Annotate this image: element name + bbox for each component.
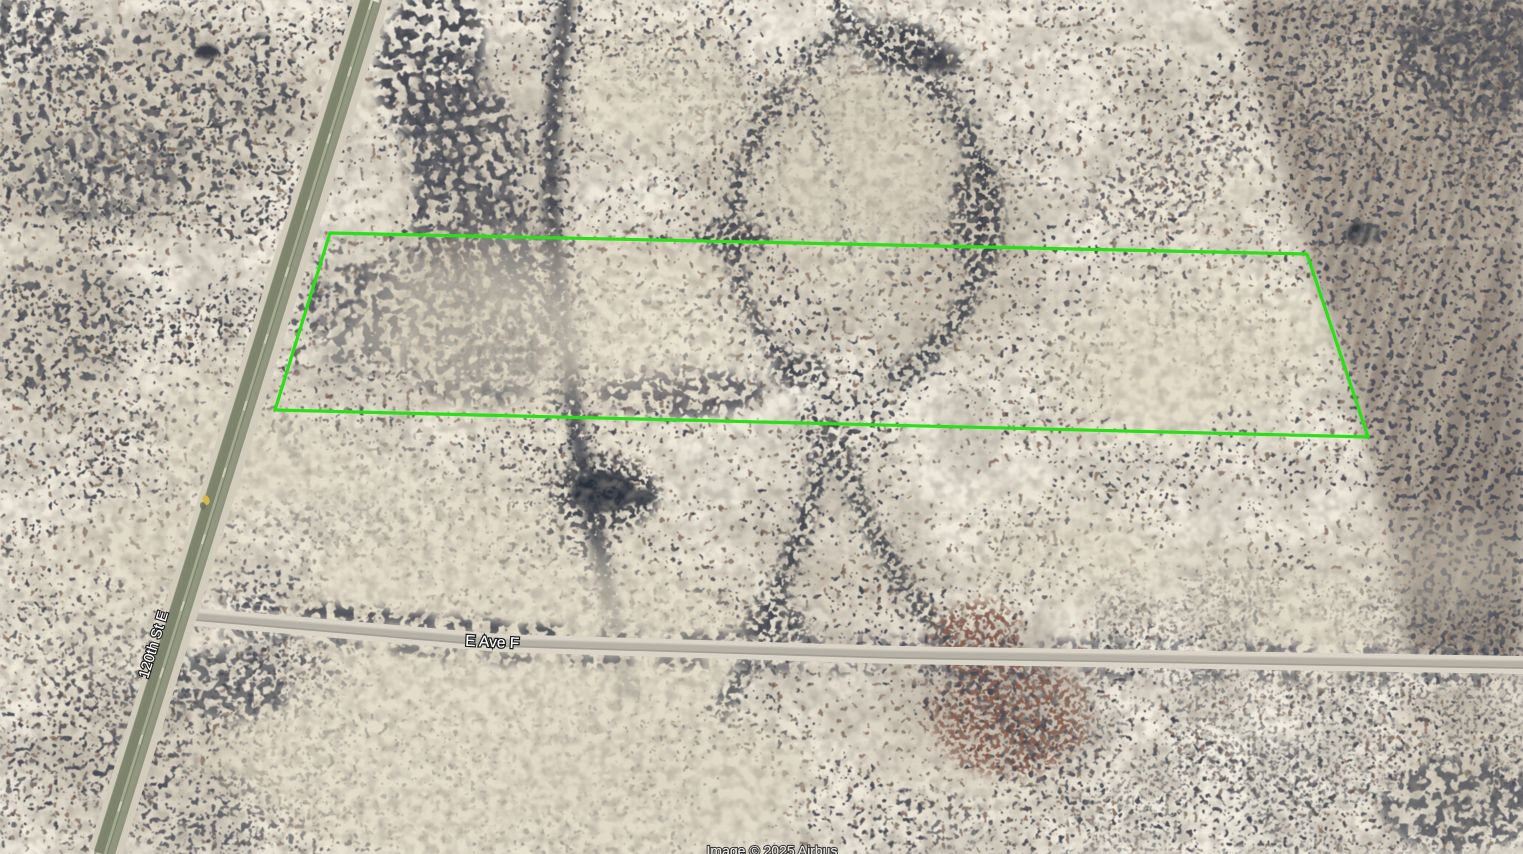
svg-text:E Ave F: E Ave F (465, 633, 520, 653)
svg-text:Image © 2025 Airbus: Image © 2025 Airbus (707, 843, 838, 854)
